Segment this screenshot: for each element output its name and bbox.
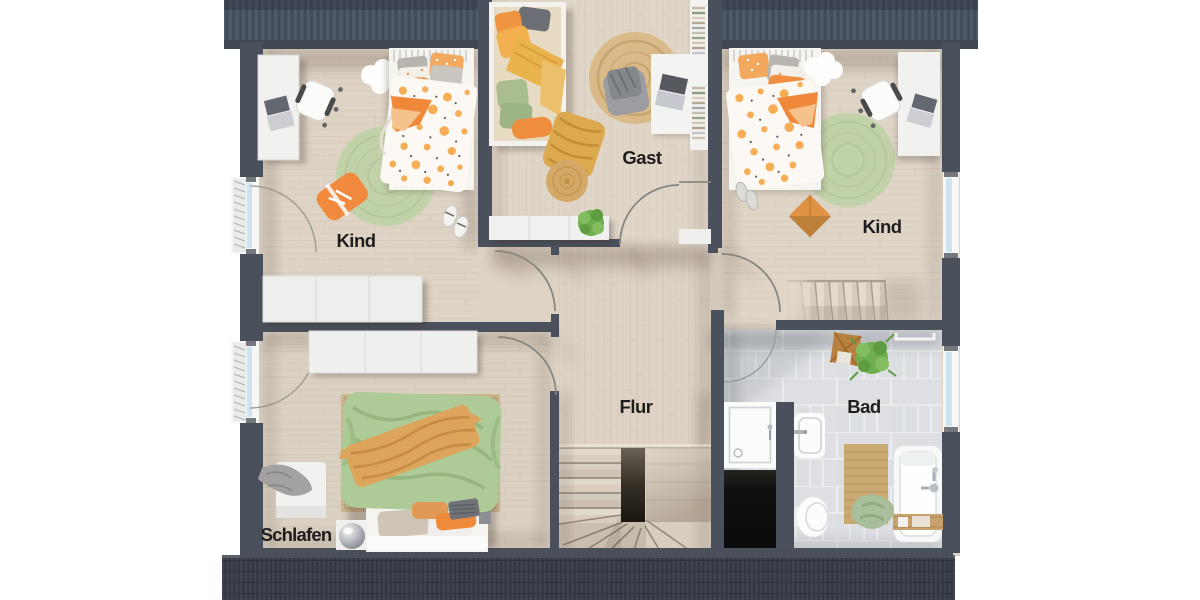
svg-text:Kind: Kind xyxy=(862,216,901,237)
svg-text:Flur: Flur xyxy=(620,396,653,417)
svg-text:Schlafen: Schlafen xyxy=(261,524,332,545)
svg-text:Bad: Bad xyxy=(847,396,881,417)
svg-text:Gast: Gast xyxy=(622,147,661,168)
svg-text:Kind: Kind xyxy=(336,230,375,251)
